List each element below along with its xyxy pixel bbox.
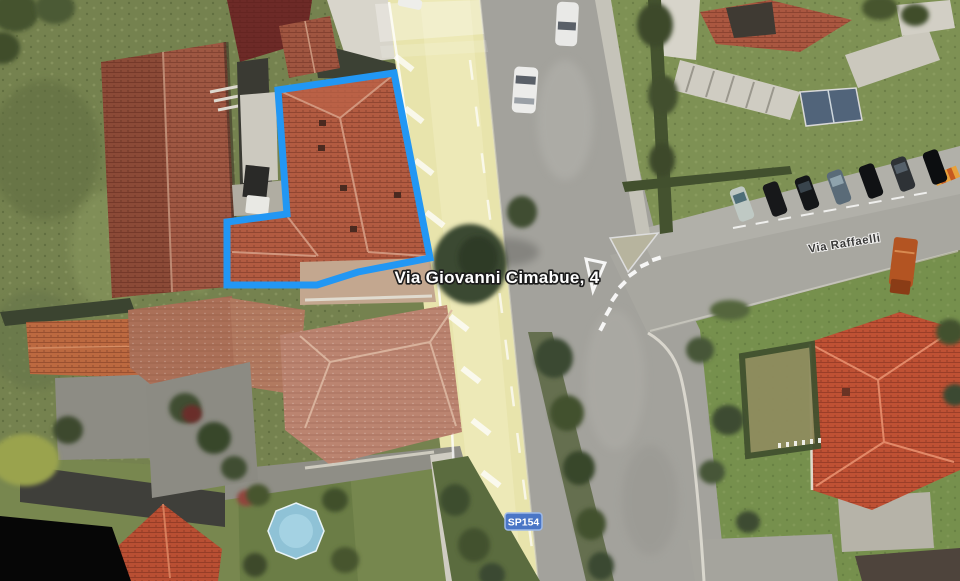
satellite-map[interactable]: Via Giovanni Cimabue, 4 Via Raffaelli SP…	[0, 0, 960, 581]
route-badge-label: SP154	[508, 517, 540, 529]
car-white-2	[555, 1, 579, 46]
route-badge: SP154	[505, 513, 542, 530]
swimming-pool	[268, 503, 324, 559]
car-white-1	[511, 66, 538, 114]
address-label: Via Giovanni Cimabue, 4	[395, 268, 600, 287]
map-canvas[interactable]: Via Giovanni Cimabue, 4 Via Raffaelli SP…	[0, 0, 960, 581]
parked-truck	[242, 165, 269, 215]
